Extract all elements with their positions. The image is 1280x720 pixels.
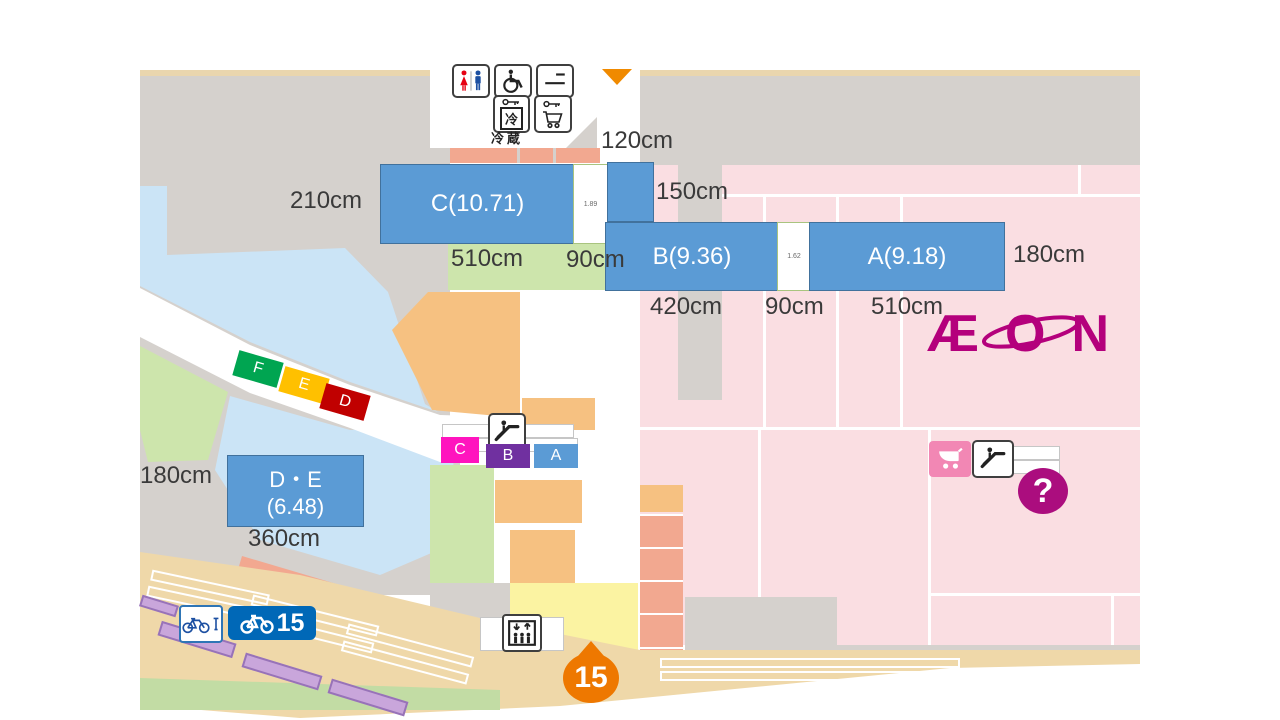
stall-marker-b: B [486, 444, 530, 468]
map-zone-salmon-stack-2 [640, 547, 683, 580]
measurement-c-bottom: 510cm [451, 246, 523, 272]
dimension-box-de: D・E (6.48) [227, 455, 364, 527]
store-divider-line [1078, 165, 1081, 197]
map-zone-salmon-row-3 [556, 148, 600, 163]
stall-marker-a: A [534, 444, 578, 468]
cold-locker-inner: 冷 [500, 107, 523, 130]
question-mark: ? [1033, 472, 1054, 511]
store-divider-line [930, 593, 1140, 596]
bicycle-icon [182, 615, 210, 634]
entrance-pin: 15 [563, 653, 619, 703]
air-pump-icon [212, 614, 220, 634]
map-zone-green-center [430, 465, 494, 583]
dimension-box-small [607, 162, 654, 222]
bicycle-icon [240, 612, 274, 634]
measurement-ba-gap: 90cm [765, 294, 824, 320]
shelf-bar [1012, 446, 1060, 460]
coin-locker-icon-box [536, 64, 574, 98]
measurement-corridor-width: 120cm [601, 128, 673, 154]
store-divider-line [758, 427, 761, 597]
escalator-icon [493, 418, 521, 446]
key-icon [543, 100, 563, 108]
parking-stall-row [660, 658, 960, 668]
map-zone-salmon-stack-4 [640, 613, 683, 647]
toilet-icon-box [452, 64, 490, 98]
stroller-icon-box [929, 441, 971, 477]
map-zone-orange-shop-3 [495, 480, 582, 523]
dimension-gap-c: 1.89 [573, 164, 608, 244]
map-zone-salmon-row-1 [450, 148, 517, 163]
measurement-a-right: 180cm [1013, 242, 1085, 268]
corridor-arrow-icon [602, 69, 632, 85]
map-zone-salmon-stack-3 [640, 580, 683, 613]
dimension-box-a: A(9.18) [809, 222, 1005, 291]
shopping-cart-icon [541, 109, 565, 129]
key-icon [502, 98, 522, 106]
measurement-b-bottom: 420cm [650, 294, 722, 320]
dimension-box-b: B(9.36) [605, 222, 779, 291]
aeon-logo: ÆON [925, 302, 1115, 366]
map-zone-top-road [140, 70, 1140, 76]
measurement-small-right: 150cm [656, 179, 728, 205]
cart-locker-icon-box [534, 95, 572, 133]
escalator-icon [979, 445, 1007, 473]
dimension-box-c: C(10.71) [380, 164, 575, 244]
dimension-box-de-line2: (6.48) [267, 494, 324, 520]
dimension-box-de-line1: D・E [269, 462, 322, 494]
map-zone-orange-shop-5 [640, 485, 683, 512]
elevator-icon [507, 619, 537, 647]
measurement-de-bottom: 360cm [248, 526, 320, 552]
escalator-icon-box-right [972, 440, 1014, 478]
stroller-icon [937, 448, 963, 470]
measurement-c-gap: 90cm [566, 247, 625, 273]
store-divider-line [640, 427, 1140, 430]
aeon-logo-text: ÆON [927, 305, 1109, 363]
coin-locker-icon [542, 68, 568, 94]
elevator-icon-box [502, 614, 542, 652]
measurement-de-left: 180cm [140, 463, 212, 489]
stall-marker-c: C [441, 437, 479, 463]
toilet-icon [457, 69, 485, 93]
store-divider-line [1111, 593, 1114, 645]
dimension-gap-ba: 1.62 [777, 222, 811, 291]
measurement-c-left: 210cm [290, 188, 362, 214]
measurement-a-bottom: 510cm [871, 294, 943, 320]
entrance-pin-number: 15 [574, 661, 607, 695]
wheelchair-icon-box [494, 64, 532, 98]
parking-stall-row [660, 671, 960, 681]
map-zone-salmon-row-2 [520, 148, 553, 163]
mall-floor-map: 冷 冷蔵 C B A F E D [0, 0, 1280, 720]
bicycle-parking-count: 15 [277, 609, 305, 638]
cold-locker-icon-box: 冷 [493, 95, 530, 133]
cold-storage-label: 冷蔵 [491, 132, 523, 146]
map-zone-salmon-stack-1 [640, 514, 683, 547]
wheelchair-icon [500, 68, 526, 94]
bicycle-parking-badge: 15 [228, 606, 316, 640]
map-zone-orange-shop-4 [510, 530, 575, 583]
information-badge: ? [1018, 468, 1068, 514]
bicycle-pump-icon-box [179, 605, 223, 643]
